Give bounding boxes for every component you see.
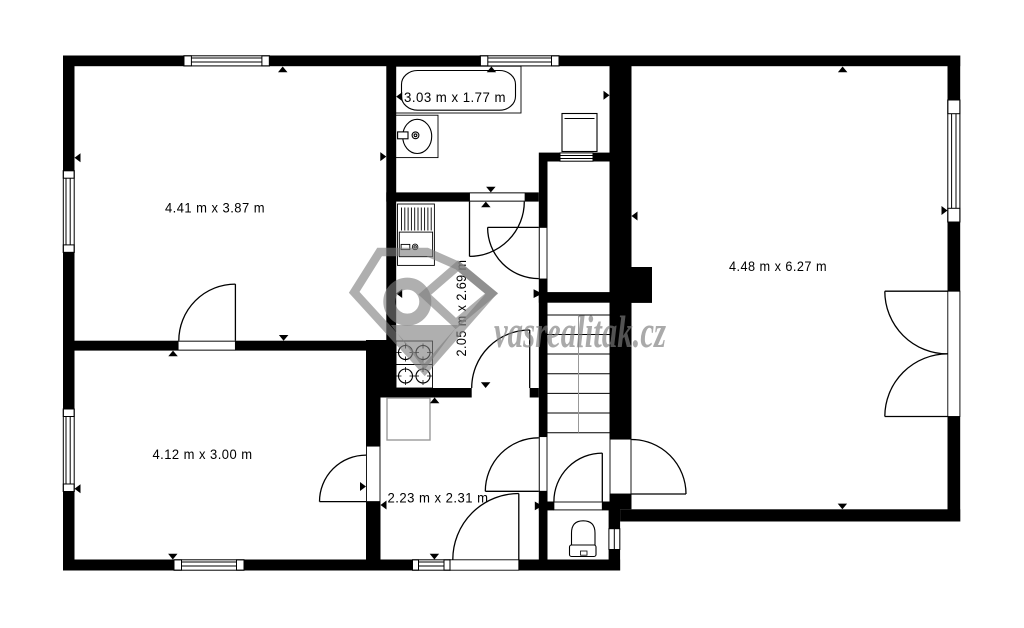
svg-text:vasrealitak.cz: vasrealitak.cz <box>494 306 666 357</box>
svg-text:4.12 m x 3.00 m: 4.12 m x 3.00 m <box>153 446 253 462</box>
svg-text:4.41 m x 3.87 m: 4.41 m x 3.87 m <box>165 200 265 216</box>
svg-text:3.03 m x 1.77 m: 3.03 m x 1.77 m <box>404 89 506 105</box>
svg-text:2.23 m x 2.31 m: 2.23 m x 2.31 m <box>388 490 489 506</box>
svg-text:4.48 m x 6.27 m: 4.48 m x 6.27 m <box>729 258 827 274</box>
